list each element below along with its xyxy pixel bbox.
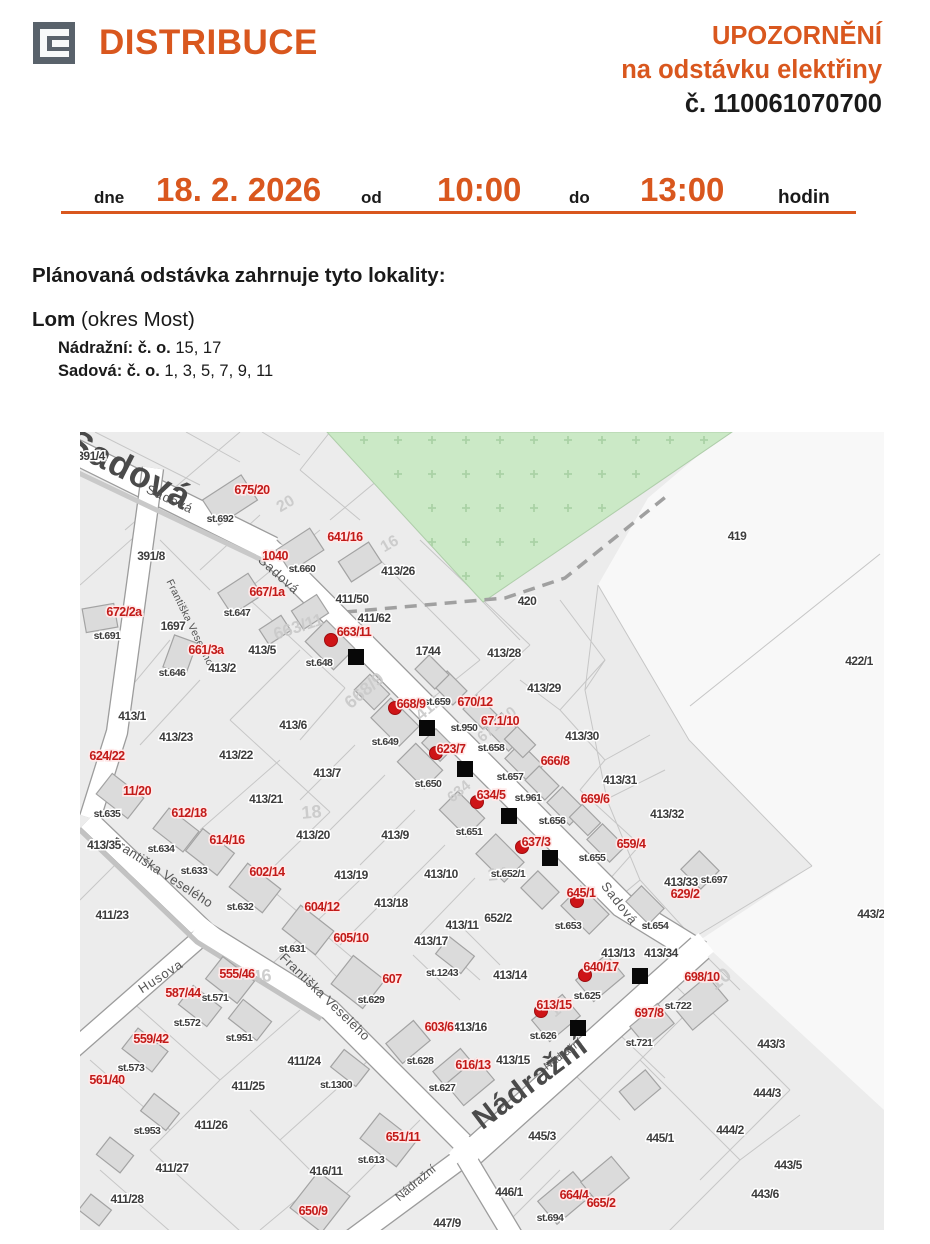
svg-text:561/40: 561/40 (89, 1073, 125, 1087)
svg-text:697/8: 697/8 (635, 1006, 664, 1020)
svg-text:411/23: 411/23 (95, 908, 129, 922)
svg-text:669/6: 669/6 (581, 792, 610, 806)
svg-text:413/29: 413/29 (527, 681, 562, 695)
svg-text:413/18: 413/18 (374, 896, 409, 910)
svg-text:st.721: st.721 (626, 1037, 653, 1049)
svg-text:st.626: st.626 (530, 1030, 557, 1042)
svg-text:st.697: st.697 (701, 874, 728, 886)
svg-text:411/62: 411/62 (357, 611, 391, 625)
svg-text:559/42: 559/42 (133, 1032, 169, 1046)
svg-text:613/15: 613/15 (536, 998, 572, 1012)
svg-text:st.571: st.571 (202, 992, 229, 1004)
svg-text:st.628: st.628 (407, 1055, 434, 1067)
svg-text:391/8: 391/8 (137, 549, 165, 563)
svg-text:11/20: 11/20 (123, 784, 152, 798)
svg-text:651/11: 651/11 (386, 1130, 421, 1144)
svg-text:1744: 1744 (416, 644, 442, 658)
svg-text:604/12: 604/12 (304, 900, 340, 914)
svg-text:413/7: 413/7 (313, 766, 341, 780)
svg-text:659/4: 659/4 (617, 837, 646, 851)
svg-text:st.633: st.633 (181, 865, 208, 877)
svg-text:411/28: 411/28 (110, 1192, 144, 1206)
svg-text:602/14: 602/14 (249, 865, 285, 879)
svg-text:420: 420 (518, 594, 537, 608)
svg-text:st.653: st.653 (555, 920, 582, 932)
svg-text:st.692: st.692 (207, 513, 234, 525)
svg-text:st.1300: st.1300 (320, 1079, 353, 1091)
svg-text:675/20: 675/20 (234, 483, 270, 497)
svg-text:607: 607 (382, 972, 402, 986)
svg-text:413/34: 413/34 (644, 946, 679, 960)
svg-text:645/1: 645/1 (567, 886, 596, 900)
svg-text:652/2: 652/2 (484, 911, 512, 925)
svg-text:st.629: st.629 (358, 994, 385, 1006)
svg-text:st.635: st.635 (94, 808, 121, 820)
svg-text:413/6: 413/6 (279, 718, 307, 732)
svg-text:18: 18 (301, 801, 323, 823)
svg-text:447/9: 447/9 (433, 1216, 461, 1230)
svg-text:st.961: st.961 (515, 792, 542, 804)
svg-text:st.950: st.950 (451, 722, 478, 734)
svg-text:1040: 1040 (262, 549, 288, 563)
svg-text:416/11: 416/11 (309, 1164, 343, 1178)
svg-text:698/10: 698/10 (684, 970, 720, 984)
svg-text:411/50: 411/50 (335, 592, 369, 606)
svg-text:391/4: 391/4 (80, 449, 106, 463)
svg-text:624/22: 624/22 (89, 749, 125, 763)
svg-text:413/15: 413/15 (496, 1053, 531, 1067)
svg-text:603/6: 603/6 (425, 1020, 454, 1034)
svg-text:445/1: 445/1 (646, 1131, 674, 1145)
svg-text:st.631: st.631 (279, 943, 306, 955)
svg-text:413/1: 413/1 (118, 709, 146, 723)
svg-text:st.647: st.647 (224, 607, 251, 619)
svg-text:413/13: 413/13 (601, 946, 636, 960)
svg-text:413/19: 413/19 (334, 868, 369, 882)
svg-text:st.660: st.660 (289, 563, 316, 575)
svg-text:413/30: 413/30 (565, 729, 600, 743)
svg-text:411/26: 411/26 (194, 1118, 228, 1132)
svg-text:419: 419 (728, 529, 747, 543)
svg-text:413/31: 413/31 (603, 773, 638, 787)
svg-text:st.613: st.613 (358, 1154, 385, 1166)
svg-text:650/9: 650/9 (299, 1204, 328, 1218)
svg-text:605/10: 605/10 (333, 931, 369, 945)
svg-text:st.722: st.722 (665, 1000, 692, 1012)
svg-text:629/2: 629/2 (671, 887, 700, 901)
svg-text:623/7: 623/7 (437, 742, 466, 756)
svg-text:446/1: 446/1 (495, 1185, 523, 1199)
svg-text:st.655: st.655 (579, 852, 606, 864)
svg-text:614/16: 614/16 (209, 833, 245, 847)
svg-text:444/2: 444/2 (716, 1123, 744, 1137)
svg-text:663/11: 663/11 (337, 625, 372, 639)
svg-text:413/5: 413/5 (248, 643, 276, 657)
svg-text:67.1/10: 67.1/10 (481, 714, 520, 728)
svg-text:612/18: 612/18 (171, 806, 207, 820)
svg-text:st.652/1: st.652/1 (491, 868, 526, 880)
svg-text:413/17: 413/17 (414, 934, 449, 948)
svg-text:443/6: 443/6 (751, 1187, 779, 1201)
svg-text:st.656: st.656 (539, 815, 566, 827)
svg-text:411/27: 411/27 (155, 1161, 189, 1175)
svg-text:587/44: 587/44 (165, 986, 201, 1000)
svg-text:637/3: 637/3 (522, 835, 551, 849)
svg-text:1697: 1697 (161, 619, 187, 633)
svg-text:st.627: st.627 (429, 1082, 456, 1094)
svg-text:st.648: st.648 (306, 657, 333, 669)
svg-text:445/3: 445/3 (528, 1129, 556, 1143)
svg-text:st.953: st.953 (134, 1125, 161, 1137)
svg-text:413/26: 413/26 (381, 564, 416, 578)
svg-text:641/16: 641/16 (327, 530, 363, 544)
svg-text:413/10: 413/10 (424, 867, 459, 881)
svg-text:667/1a: 667/1a (249, 585, 286, 599)
svg-text:st.651: st.651 (456, 826, 483, 838)
svg-text:668/9: 668/9 (397, 697, 426, 711)
svg-text:664/4: 664/4 (560, 1188, 589, 1202)
svg-text:640/17: 640/17 (583, 960, 619, 974)
svg-text:411/24: 411/24 (287, 1054, 321, 1068)
svg-text:413/20: 413/20 (296, 828, 331, 842)
svg-text:st.659: st.659 (424, 696, 451, 708)
svg-text:413/2: 413/2 (208, 661, 236, 675)
svg-text:666/8: 666/8 (541, 754, 570, 768)
svg-text:422/1: 422/1 (845, 654, 873, 668)
svg-text:st.654: st.654 (642, 920, 669, 932)
svg-text:616/13: 616/13 (455, 1058, 491, 1072)
svg-text:665/2: 665/2 (587, 1196, 616, 1210)
svg-text:st.1243: st.1243 (426, 967, 459, 979)
svg-text:413/32: 413/32 (650, 807, 685, 821)
svg-text:st.646: st.646 (159, 667, 186, 679)
svg-text:555/46: 555/46 (219, 967, 255, 981)
svg-text:672/2a: 672/2a (106, 605, 143, 619)
svg-text:411/25: 411/25 (231, 1079, 265, 1093)
svg-text:st.649: st.649 (372, 736, 399, 748)
svg-text:st.657: st.657 (497, 771, 524, 783)
svg-text:443/2: 443/2 (857, 907, 884, 921)
svg-text:444/3: 444/3 (753, 1086, 781, 1100)
svg-text:st.691: st.691 (94, 630, 121, 642)
svg-text:st.572: st.572 (174, 1017, 201, 1029)
svg-text:413/23: 413/23 (159, 730, 194, 744)
svg-text:413/22: 413/22 (219, 748, 254, 762)
svg-text:st.625: st.625 (574, 990, 601, 1002)
svg-text:413/35: 413/35 (87, 838, 122, 852)
svg-text:st.634: st.634 (148, 843, 175, 855)
svg-text:st.694: st.694 (537, 1212, 564, 1224)
svg-text:st.658: st.658 (478, 742, 505, 754)
svg-text:443/5: 443/5 (774, 1158, 802, 1172)
svg-text:413/21: 413/21 (249, 792, 284, 806)
svg-text:413/16: 413/16 (453, 1020, 488, 1034)
svg-text:st.951: st.951 (226, 1032, 253, 1044)
svg-text:st.632: st.632 (227, 901, 254, 913)
svg-text:413/28: 413/28 (487, 646, 522, 660)
svg-text:413/9: 413/9 (381, 828, 409, 842)
svg-text:670/12: 670/12 (457, 695, 493, 709)
svg-text:st.650: st.650 (415, 778, 442, 790)
svg-text:413/11: 413/11 (445, 918, 479, 932)
svg-text:634/5: 634/5 (477, 788, 506, 802)
svg-text:413/14: 413/14 (493, 968, 528, 982)
svg-text:443/3: 443/3 (757, 1037, 785, 1051)
svg-text:661/3a: 661/3a (188, 643, 225, 657)
